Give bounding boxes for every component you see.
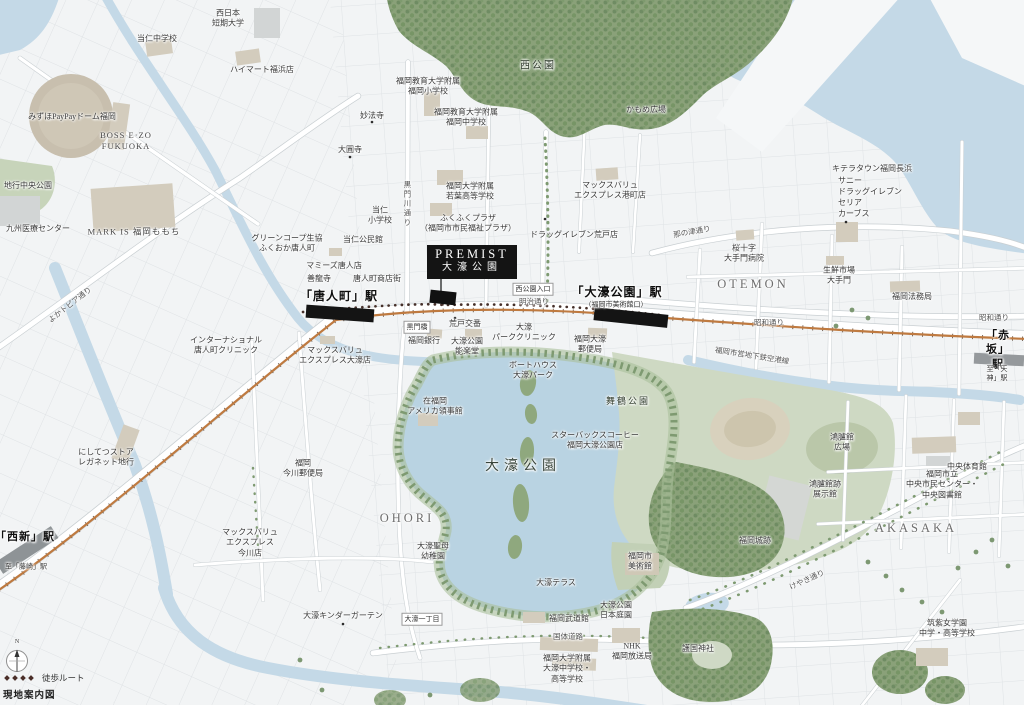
route-dot-icon <box>28 675 34 681</box>
route-dot-icon <box>20 675 26 681</box>
map-canvas <box>0 0 1024 705</box>
route-dot-icon <box>12 675 18 681</box>
walk-route-legend: 徒歩ルート <box>5 672 85 684</box>
map-caption: 現地案内図 <box>3 687 56 701</box>
premist-site-marker <box>429 290 456 306</box>
premist-callout-brand: PREMIST <box>427 247 517 262</box>
walk-route-label: 徒歩ルート <box>42 672 85 684</box>
premist-callout-name: 大濠公園 <box>427 262 517 274</box>
premist-callout: PREMIST 大濠公園 <box>427 245 517 279</box>
route-dot-icon <box>4 675 10 681</box>
area-map: 当仁中学校西日本 短期大学ハイマート福浜店みずほPayPayドーム福岡BOSS … <box>0 0 1024 705</box>
